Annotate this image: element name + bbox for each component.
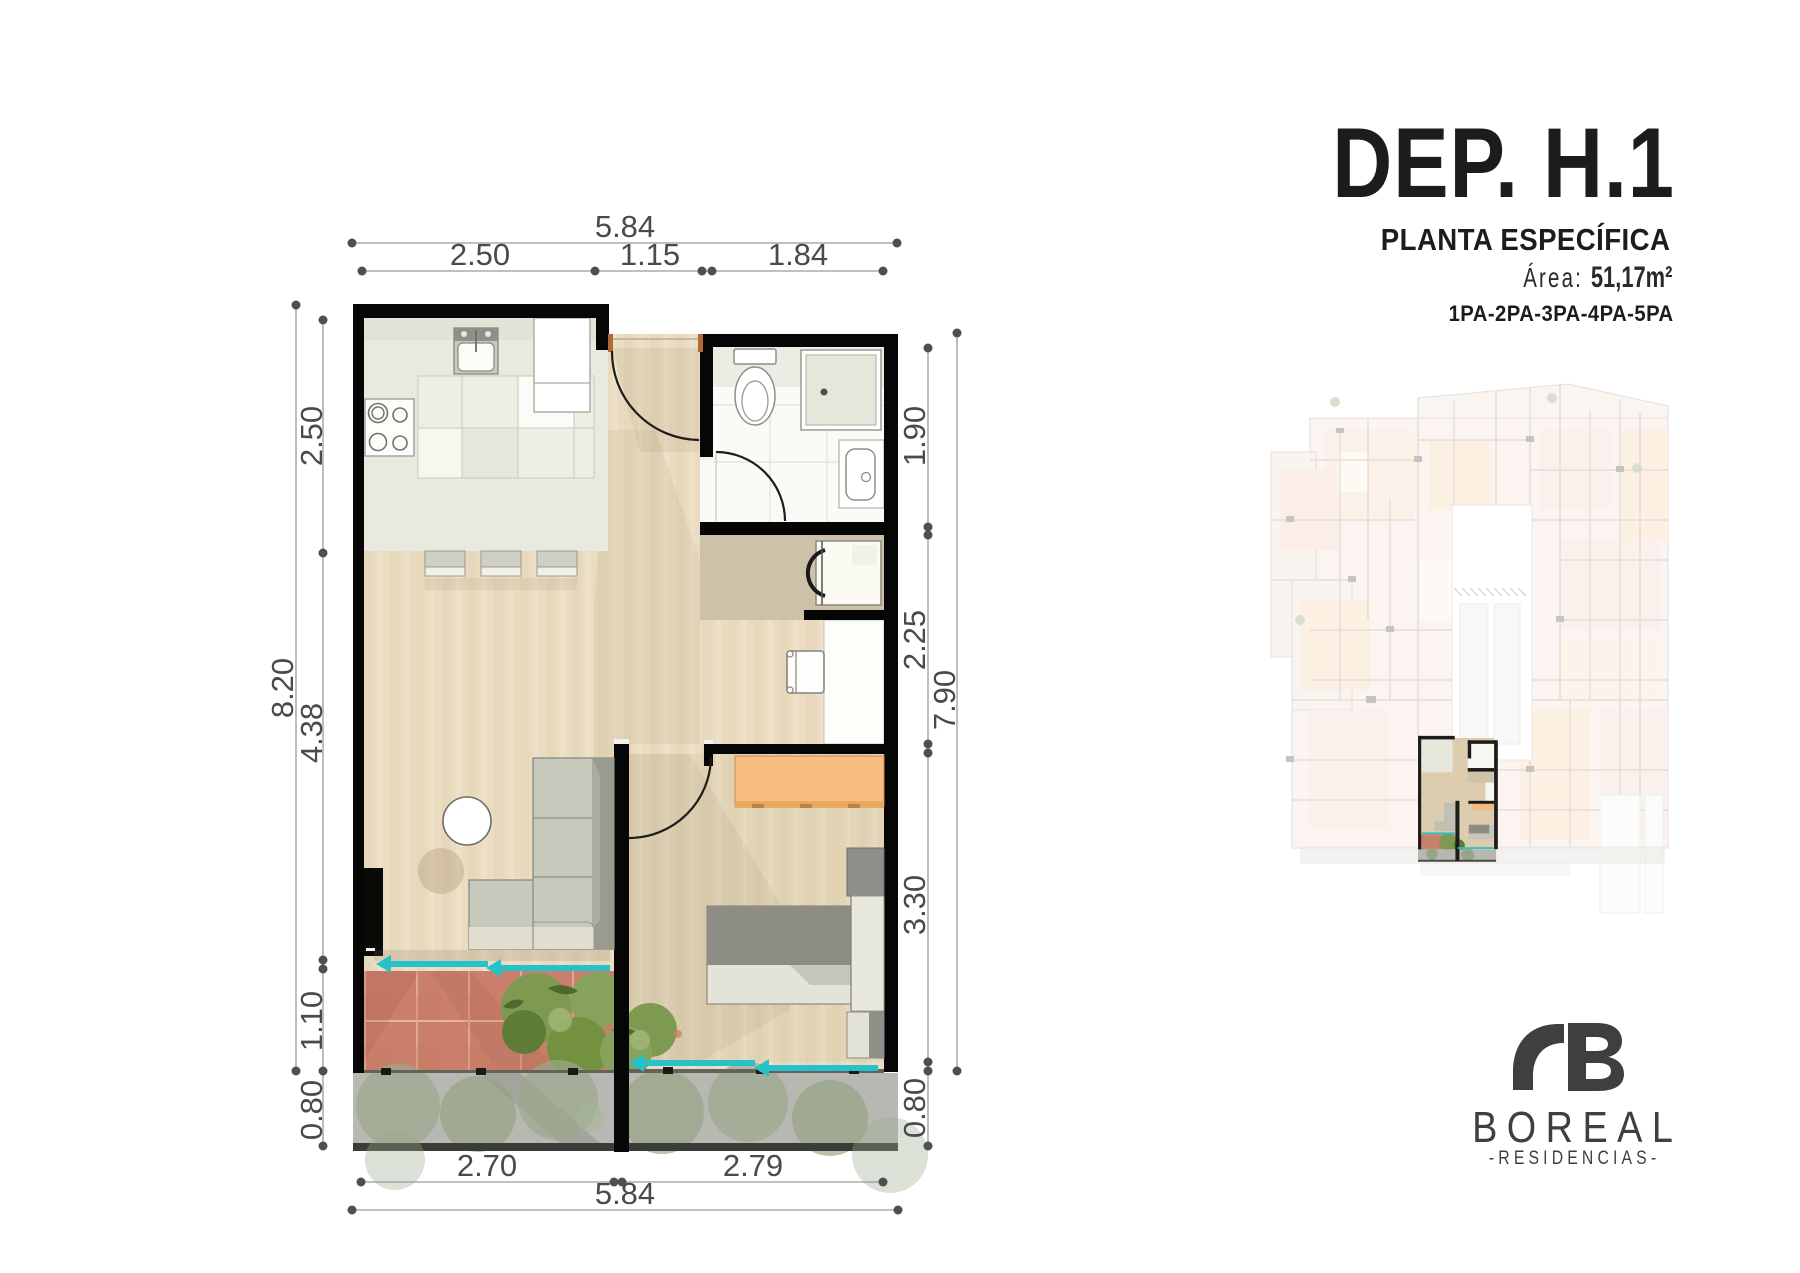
svg-text:7.90: 7.90 xyxy=(927,670,962,730)
svg-text:1.84: 1.84 xyxy=(768,237,828,272)
svg-text:4.38: 4.38 xyxy=(294,703,329,763)
svg-text:2.25: 2.25 xyxy=(897,610,932,670)
svg-text:2.50: 2.50 xyxy=(294,406,329,466)
svg-text:0.80: 0.80 xyxy=(294,1080,329,1140)
svg-text:1.90: 1.90 xyxy=(897,406,932,466)
svg-text:2.70: 2.70 xyxy=(457,1148,517,1183)
svg-text:5.84: 5.84 xyxy=(595,1176,655,1211)
svg-text:2.79: 2.79 xyxy=(723,1148,783,1183)
svg-text:1.15: 1.15 xyxy=(620,237,680,272)
svg-text:2.50: 2.50 xyxy=(450,237,510,272)
svg-text:0.80: 0.80 xyxy=(897,1078,932,1138)
svg-text:1.10: 1.10 xyxy=(294,991,329,1051)
svg-text:3.30: 3.30 xyxy=(897,875,932,935)
